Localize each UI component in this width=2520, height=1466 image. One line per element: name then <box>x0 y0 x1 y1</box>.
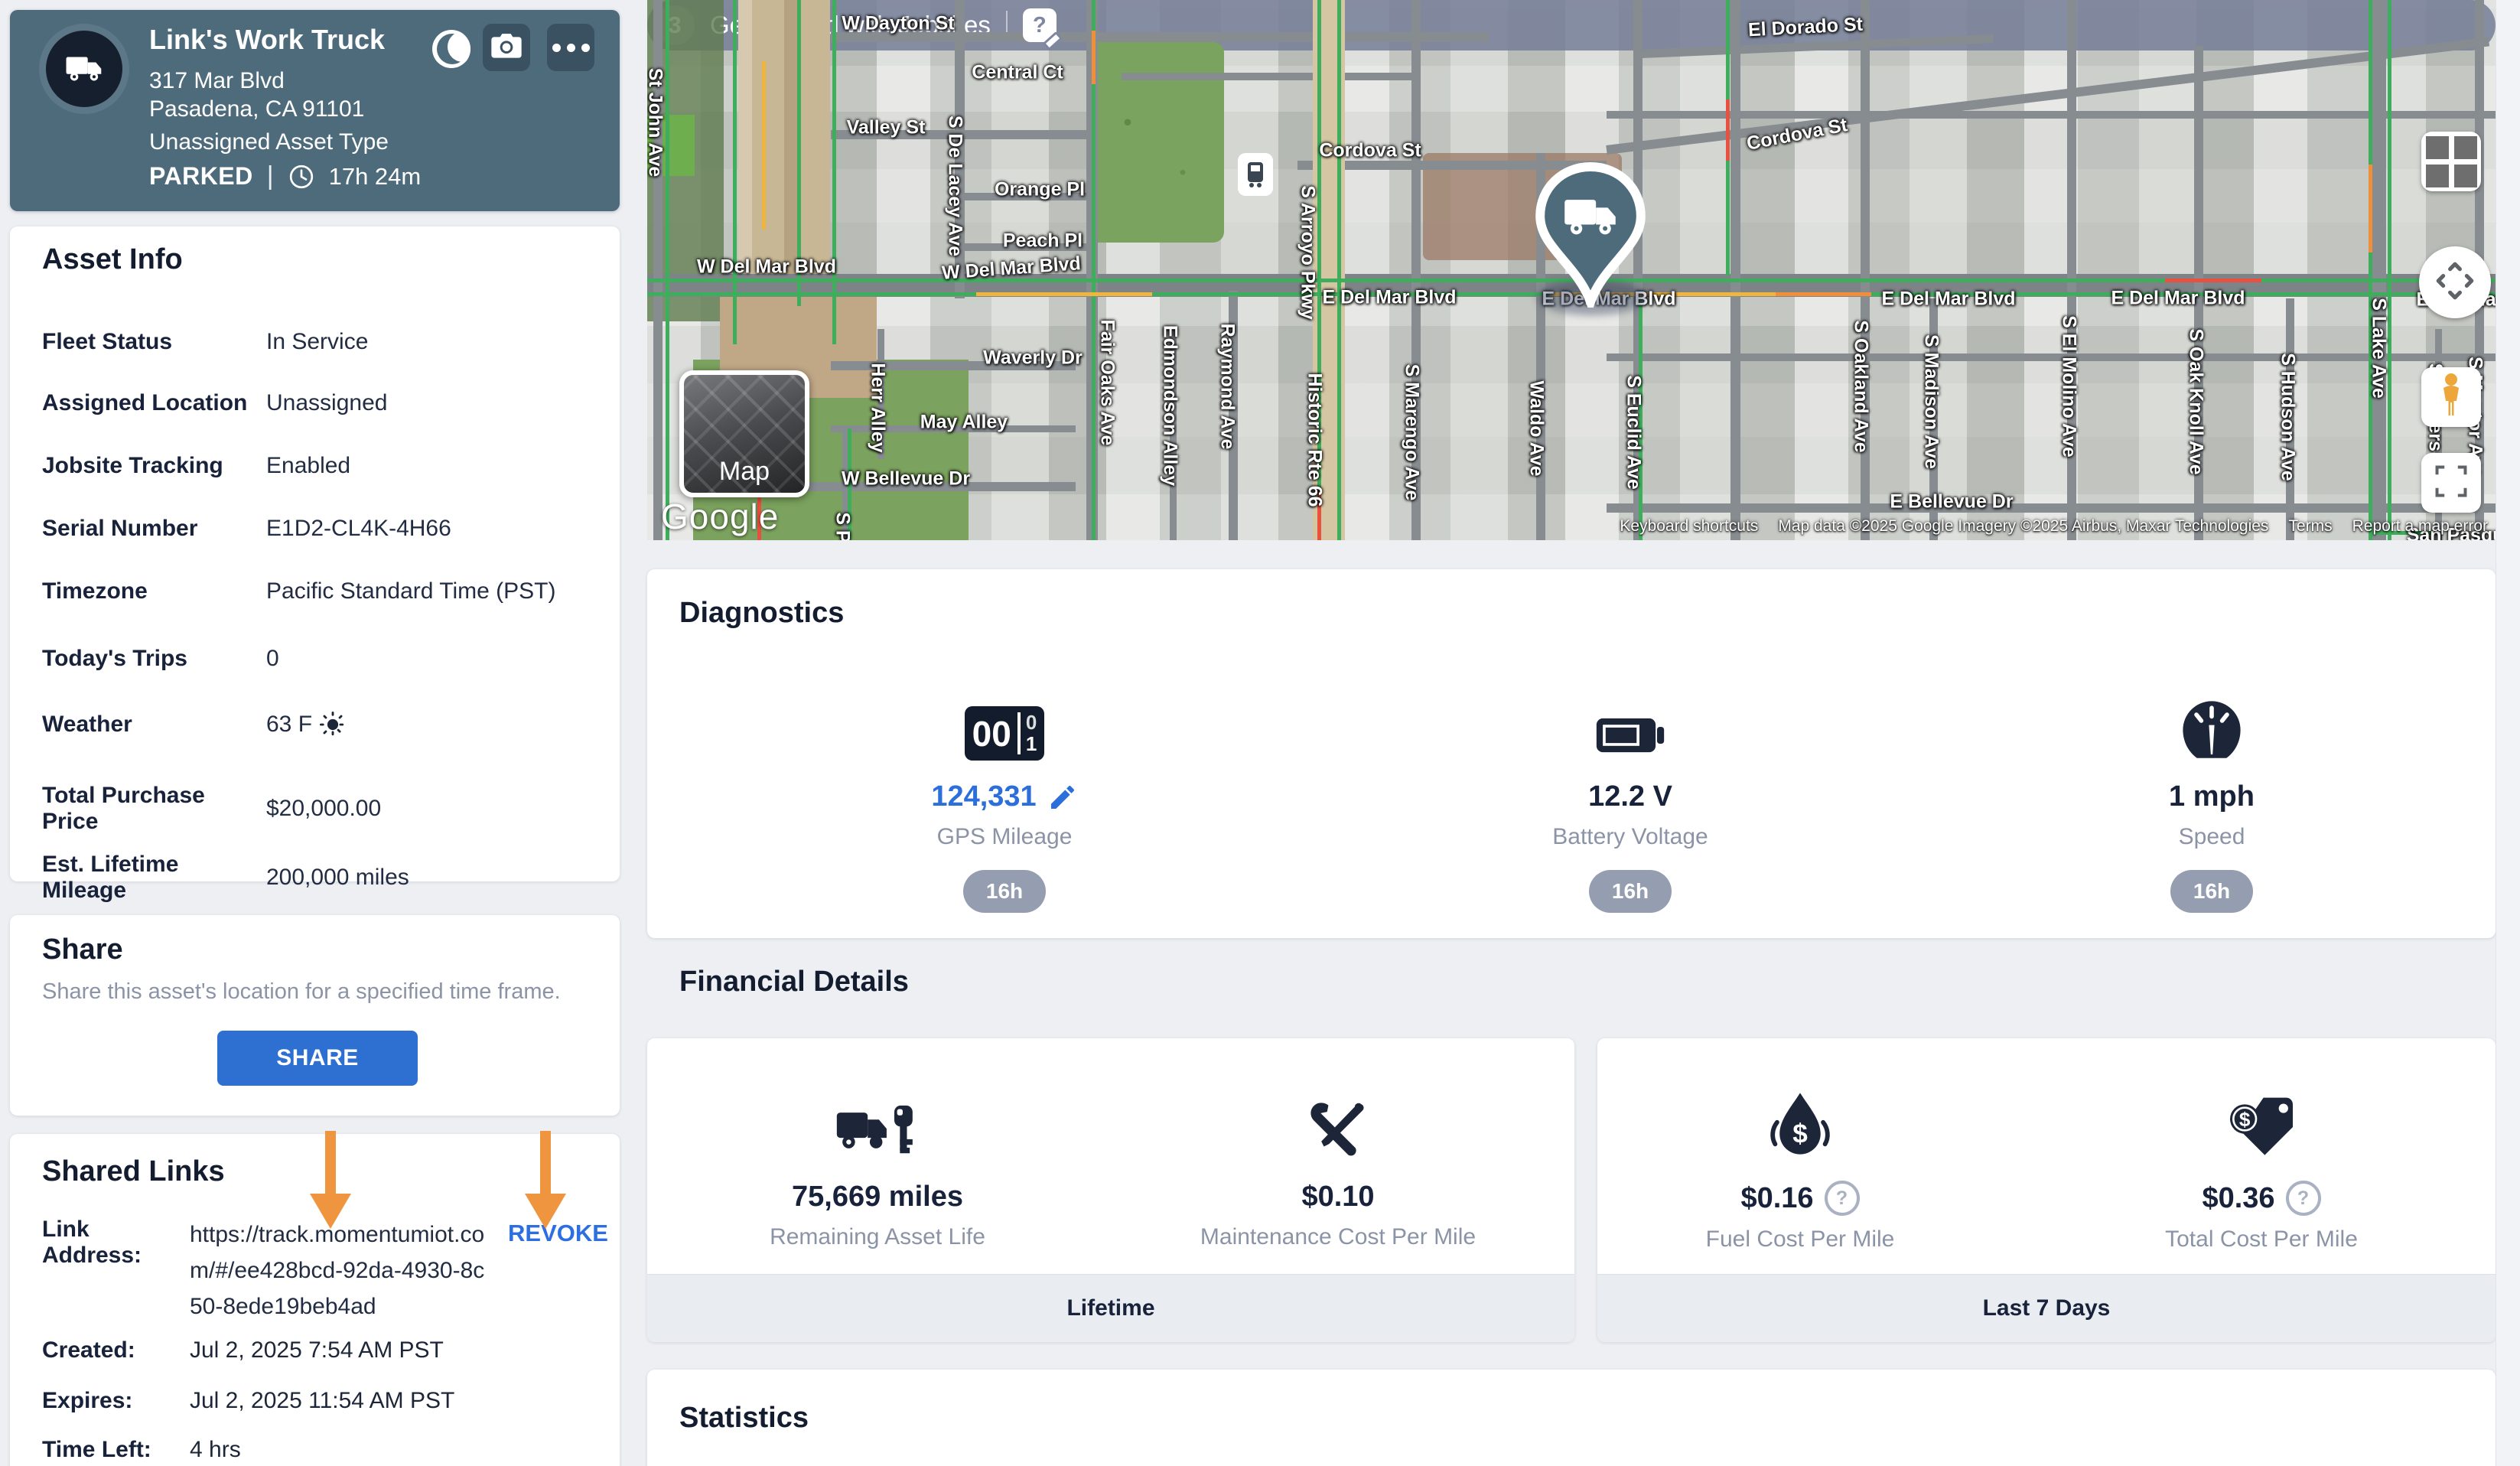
total-cost-value: $0.36 ? <box>2078 1181 2445 1216</box>
street-label: Cordova St <box>1745 114 1849 155</box>
info-row: Serial NumberE1D2-CL4K-4H66 <box>42 516 597 542</box>
info-row: Today's Trips0 <box>42 646 597 672</box>
fuel-cost-metric: $ $0.16 ? Fuel Cost Per Mile <box>1617 1084 1984 1253</box>
street-label: S Madison Ave <box>1920 334 1942 469</box>
expires-row: Expires: Jul 2, 2025 11:54 AM PST <box>42 1388 454 1414</box>
pegman-button[interactable] <box>2421 367 2481 427</box>
status-badge: PARKED <box>149 162 253 191</box>
info-row-label: Timezone <box>42 578 266 604</box>
street-label: Waverly Dr <box>983 347 1083 370</box>
remaining-asset-life-metric: 75,669 miles Remaining Asset Life <box>694 1084 1061 1250</box>
google-logo[interactable]: Google <box>661 496 779 537</box>
speed-value: 1 mph <box>2051 780 2372 813</box>
street-label: E Del Mar Blvd <box>1322 287 1456 309</box>
ellipsis-icon <box>552 44 590 52</box>
street-label: Edmondson Alley <box>1159 325 1181 486</box>
svg-text:$: $ <box>1792 1119 1808 1149</box>
total-cost-label: Total Cost Per Mile <box>2078 1227 2445 1253</box>
info-row-value: Pacific Standard Time (PST) <box>266 578 555 604</box>
grid-icon <box>2426 136 2477 187</box>
created-value: Jul 2, 2025 7:54 AM PST <box>190 1337 444 1363</box>
asset-title: Link's Work Truck <box>149 24 385 56</box>
fuel-cost-help-icon[interactable]: ? <box>1825 1181 1860 1216</box>
report-map-error-link[interactable]: Report a map error <box>2352 517 2488 536</box>
speed-age-badge: 16h <box>2170 870 2253 913</box>
maintenance-cost-value: $0.10 <box>1139 1181 1537 1214</box>
info-row-label: Assigned Location <box>42 390 266 416</box>
map-type-label: Map <box>684 457 805 487</box>
total-cost-help-icon[interactable]: ? <box>2286 1181 2321 1216</box>
asset-type: Unassigned Asset Type <box>149 129 389 155</box>
financial-7days-card: $ $0.16 ? Fuel Cost Per Mile $ $0.36 ? T… <box>1597 1038 2496 1342</box>
street-label: S De Lacey Ave <box>944 116 966 256</box>
map-type-toggle[interactable]: Map <box>679 370 809 497</box>
pegman-icon <box>2436 373 2466 422</box>
street-label: St John Ave <box>647 68 666 178</box>
street-label: W Del Mar Blvd <box>697 256 836 279</box>
expires-value: Jul 2, 2025 11:54 AM PST <box>190 1388 454 1414</box>
street-label: Raymond Ave <box>1216 324 1239 450</box>
road <box>1122 73 1412 80</box>
street-label: Herr Alley <box>867 363 889 452</box>
maintenance-cost-metric: $0.10 Maintenance Cost Per Mile <box>1139 1084 1537 1250</box>
battery-voltage-label: Battery Voltage <box>1470 824 1791 850</box>
asset-address-line2: Pasadena, CA 91101 <box>149 96 364 122</box>
gps-mileage-value[interactable]: 124,331 <box>844 780 1165 813</box>
diagnostics-card: Diagnostics 0001 124,331 GPS Mileage 16h… <box>647 569 2496 938</box>
total-cost-metric: $ $0.36 ? Total Cost Per Mile <box>2078 1084 2445 1253</box>
traffic-line <box>1337 0 1341 540</box>
jobsites-help-tag-icon[interactable]: ? <box>1023 8 1057 42</box>
svg-text:$: $ <box>2239 1108 2251 1131</box>
traffic-line <box>762 61 766 230</box>
sun-icon <box>320 712 346 738</box>
street-label: S Lake Ave <box>2368 298 2390 399</box>
info-row-label: Weather <box>42 712 266 738</box>
speed-label: Speed <box>2051 824 2372 850</box>
info-row-value: 63 F <box>266 712 346 738</box>
street-label: Peach Pl <box>1003 230 1083 252</box>
camera-button[interactable] <box>483 24 530 71</box>
created-row: Created: Jul 2, 2025 7:54 AM PST <box>42 1337 444 1363</box>
street-label: W Bellevue Dr <box>842 468 970 490</box>
info-row: TimezonePacific Standard Time (PST) <box>42 578 597 604</box>
odometer-icon: 0001 <box>844 684 1165 761</box>
gps-mileage-label: GPS Mileage <box>844 824 1165 850</box>
lifetime-period-footer: Lifetime <box>647 1274 1574 1342</box>
clock-icon <box>288 163 315 191</box>
info-row: Est. Lifetime Mileage200,000 miles <box>42 852 597 904</box>
asset-detail-page: Link's Work Truck 317 Mar Blvd Pasadena,… <box>0 0 2520 1466</box>
map-pan-control[interactable] <box>2419 246 2491 318</box>
annotation-arrow-revoke <box>525 1131 566 1229</box>
traffic-line <box>1726 99 1730 161</box>
price-tag-dollar-icon: $ <box>2078 1084 2445 1161</box>
info-row-label: Total Purchase Price <box>42 783 266 835</box>
map-attribution: Keyboard shortcuts Map data ©2025 Google… <box>1620 517 2488 536</box>
traffic-line <box>2369 165 2372 252</box>
traffic-line <box>1092 31 1096 84</box>
street-label: S Oakland Ave <box>1850 320 1872 452</box>
street-label: Historic Rte 66 <box>1304 373 1326 507</box>
maintenance-cost-label: Maintenance Cost Per Mile <box>1139 1224 1537 1250</box>
fullscreen-button[interactable] <box>2421 453 2481 513</box>
battery-voltage-metric: 12.2 V Battery Voltage 16h <box>1470 684 1791 913</box>
time-left-value: 4 hrs <box>190 1437 241 1463</box>
info-row-label: Serial Number <box>42 516 266 542</box>
sleep-mode-icon[interactable] <box>432 30 470 68</box>
street-label: W Dayton St <box>842 13 954 35</box>
info-row-value: Enabled <box>266 453 350 479</box>
info-row-value: 0 <box>266 646 279 672</box>
fuel-dollar-icon: $ <box>1617 1084 1984 1161</box>
fullscreen-icon <box>2434 464 2468 502</box>
info-row: Assigned LocationUnassigned <box>42 390 597 416</box>
street-label: S Arroyo Pkwy <box>1297 185 1319 320</box>
share-card: Share Share this asset's location for a … <box>10 915 620 1116</box>
financial-lifetime-card: 75,669 miles Remaining Asset Life $0.10 … <box>647 1038 1574 1342</box>
road-lake-ave <box>2372 0 2386 540</box>
street-label: E Del Mar Blvd <box>1881 288 2015 311</box>
shared-links-title: Shared Links <box>42 1155 225 1188</box>
time-left-label: Time Left: <box>42 1437 190 1463</box>
status-row: PARKED | 17h 24m <box>149 161 421 191</box>
asset-address-line1: 317 Mar Blvd <box>149 68 285 94</box>
street-label: May Alley <box>920 412 1008 434</box>
shared-link-url[interactable]: https://track.momentumiot.com/#/ee428bcd… <box>190 1217 492 1324</box>
info-row: Total Purchase Price$20,000.00 <box>42 783 597 835</box>
gps-age-badge: 16h <box>963 870 1046 913</box>
info-row-label: Fleet Status <box>42 329 266 355</box>
traffic-line <box>666 0 669 540</box>
street-label: Valley St <box>847 117 926 139</box>
annotation-arrow-link <box>310 1131 351 1229</box>
truck-icon <box>63 51 105 87</box>
asset-info-title: Asset Info <box>42 243 183 276</box>
map-canvas[interactable]: St John AveW Dayton StCentral CtValley S… <box>647 0 2496 540</box>
info-row: Jobsite TrackingEnabled <box>42 453 597 479</box>
street-label: Waldo Ave <box>1525 380 1548 476</box>
street-label: S El Molino Ave <box>2058 315 2080 458</box>
info-row: Fleet StatusIn Service <box>42 329 597 355</box>
asset-header-card: Link's Work Truck 317 Mar Blvd Pasadena,… <box>10 10 620 211</box>
asset-info-card: Asset Info Fleet StatusIn ServiceAssigne… <box>10 226 620 881</box>
link-address-label: Link Address: <box>42 1217 190 1324</box>
info-row: Weather63 F <box>42 712 597 738</box>
statistics-title: Statistics <box>679 1402 809 1435</box>
time-left-row: Time Left: 4 hrs <box>42 1437 241 1463</box>
road <box>2067 0 2076 540</box>
status-separator: | <box>267 161 274 191</box>
camera-icon <box>491 33 522 63</box>
avatar <box>39 24 129 114</box>
battery-icon <box>1470 684 1791 761</box>
share-description: Share this asset's location for a specif… <box>42 979 561 1005</box>
map-tilt-grid-button[interactable] <box>2421 132 2481 191</box>
traffic-line <box>2369 0 2372 540</box>
asset-marker-pin[interactable] <box>1533 162 1648 311</box>
statistics-card: Statistics <box>647 1370 2496 1466</box>
traffic-line <box>2165 279 2261 282</box>
street-label: S Marengo Ave <box>1401 364 1423 501</box>
fuel-cost-value: $0.16 ? <box>1617 1181 1984 1216</box>
street-label: E Bellevue Dr <box>1890 491 2013 513</box>
street-label: E Del Mar Blvd <box>2111 288 2245 310</box>
more-options-button[interactable] <box>547 24 594 71</box>
fuel-cost-label: Fuel Cost Per Mile <box>1617 1227 1984 1253</box>
info-row-label: Today's Trips <box>42 646 266 672</box>
tools-icon <box>1139 1084 1537 1161</box>
street-label: S Hudson Ave <box>2277 353 2299 481</box>
road <box>1861 0 1870 540</box>
link-address-row: Link Address: https://track.momentumiot.… <box>42 1217 492 1324</box>
street-label: Cordova St <box>1319 140 1421 162</box>
terms-link[interactable]: Terms <box>2288 517 2332 536</box>
street-label: S Oak Knoll Ave <box>2185 328 2207 474</box>
expires-label: Expires: <box>42 1388 190 1414</box>
info-row-value: Unassigned <box>266 390 387 416</box>
street-label: S Euclid Ave <box>1623 375 1645 490</box>
gps-mileage-metric: 0001 124,331 GPS Mileage 16h <box>844 684 1165 913</box>
transit-station-icon[interactable] <box>1238 153 1273 196</box>
info-row-value: In Service <box>266 329 368 355</box>
speedometer-icon <box>2051 684 2372 761</box>
share-button[interactable]: SHARE <box>217 1031 418 1086</box>
street-label: Orange Pl <box>995 179 1085 201</box>
remaining-asset-life-label: Remaining Asset Life <box>694 1224 1061 1250</box>
page-scrollbar[interactable] <box>2496 0 2520 1466</box>
created-label: Created: <box>42 1337 190 1363</box>
street-label: Fair Oaks Ave <box>1096 320 1118 446</box>
traffic-line <box>1776 292 1871 296</box>
edit-pencil-icon[interactable] <box>1047 782 1078 813</box>
street-label: Central Ct <box>972 62 1063 84</box>
remaining-asset-life-value: 75,669 miles <box>694 1181 1061 1214</box>
street-label: S Pasadena Ave <box>832 512 854 540</box>
battery-age-badge: 16h <box>1589 870 1672 913</box>
road <box>1730 0 1740 540</box>
speed-metric: 1 mph Speed 16h <box>2051 684 2372 913</box>
last7days-period-footer: Last 7 Days <box>1597 1274 2496 1342</box>
info-row-value: 200,000 miles <box>266 852 409 904</box>
map-data-credit: Map data ©2025 Google Imagery ©2025 Airb… <box>1778 517 2268 536</box>
info-row-label: Jobsite Tracking <box>42 453 266 479</box>
battery-voltage-value: 12.2 V <box>1470 780 1791 813</box>
parked-duration: 17h 24m <box>329 163 422 191</box>
info-row-value: E1D2-CL4K-4H66 <box>266 516 451 542</box>
traffic-line <box>976 292 1152 296</box>
financial-details-title: Financial Details <box>679 966 909 999</box>
traffic-line <box>2388 0 2391 540</box>
info-row-label: Est. Lifetime Mileage <box>42 852 266 904</box>
truck-key-icon <box>694 1084 1061 1161</box>
diagnostics-title: Diagnostics <box>679 597 844 630</box>
share-title: Share <box>42 933 123 966</box>
pan-arrows-icon <box>2430 256 2479 309</box>
info-row-value: $20,000.00 <box>266 783 381 835</box>
keyboard-shortcuts-link[interactable]: Keyboard shortcuts <box>1620 517 1758 536</box>
